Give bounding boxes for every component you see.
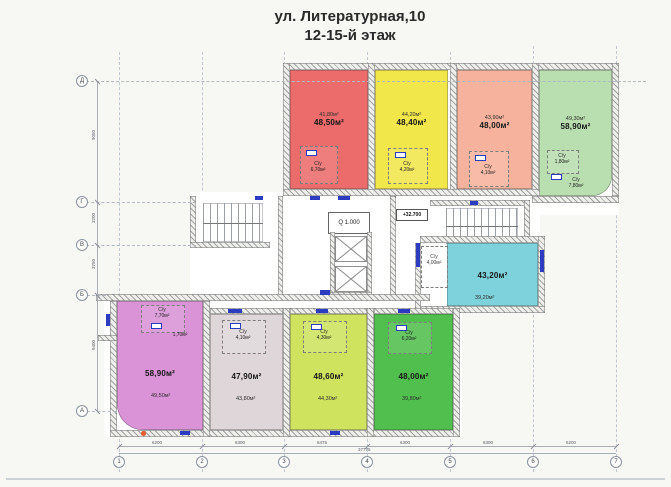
grid-bubble-col-2: 2 [196, 456, 208, 468]
window-mark [416, 243, 420, 267]
hall-area-label: 1,70м² [165, 333, 195, 339]
window-mark [398, 309, 410, 313]
grid-bubble-col-5: 5 [444, 456, 456, 468]
window-mark [310, 196, 320, 200]
window-mark [106, 314, 110, 326]
window-mark [228, 309, 242, 313]
room-area-label: 44,30м² [318, 396, 337, 402]
grid-bubble-col-3: 3 [278, 456, 290, 468]
bathroom-label: С/у1,80м² [548, 154, 576, 166]
window-mark [316, 309, 328, 313]
window-mark [255, 196, 263, 200]
bathroom-label: С/у4,10м² [226, 330, 260, 342]
sink-fixture-icon [311, 324, 322, 330]
dim-bottom-5: 6300 [483, 440, 493, 445]
sink-fixture-icon [551, 174, 562, 180]
apartment-bottom-purple: 58,90м² 49,50м² С/у7,70м² 1,70м² [117, 301, 203, 430]
window-mark [540, 250, 544, 272]
apartment-total-area: 58,90м² [539, 122, 612, 131]
elevator-cross-icon [335, 266, 367, 292]
apartment-total-area: 48,50м² [290, 118, 368, 127]
grid-bubble-row-b: Б [76, 289, 88, 301]
apartment-total-area: 48,60м² [290, 372, 367, 381]
room-area-label: 39,20м² [475, 295, 494, 301]
grid-bubble-row-v: В [76, 239, 88, 251]
wall [96, 294, 430, 301]
floor-plan-drawing: ул. Литературная,10 12-15-й этаж 41,80м²… [0, 0, 671, 487]
sink-fixture-icon [475, 155, 486, 161]
apartment-top-red: 41,80м² 48,50м² С/у6,70м² [290, 70, 368, 189]
dim-left-3: 3750 [91, 259, 96, 269]
dim-left-2: 3200 [91, 213, 96, 223]
dim-bottom-total: 37775 [358, 447, 371, 452]
dim-bottom-6: 6200 [566, 440, 576, 445]
title-address: ул. Литературная,10 [205, 8, 495, 27]
axis-row-g [76, 202, 196, 203]
room-area-label: 39,80м² [402, 396, 421, 402]
level-mark: +32.700 [396, 209, 428, 221]
wall [612, 63, 619, 196]
wall [368, 63, 375, 196]
bathroom-label: С/у7,70м² [145, 308, 179, 320]
wall [283, 189, 540, 196]
window-mark [330, 431, 340, 435]
apartment-total-area: 48,00м² [457, 121, 532, 130]
grid-bubble-row-a: А [76, 405, 88, 417]
window-mark [180, 431, 190, 435]
bathroom-label: С/у6,20м² [392, 331, 426, 343]
grid-bubble-col-6: 6 [527, 456, 539, 468]
apartment-mid-teal: 43,20м² 39,20м² [447, 243, 538, 306]
apartment-total-area: 48,40м² [375, 118, 448, 127]
bathroom-label: С/у4,10м² [471, 165, 505, 177]
drawing-frame-line [6, 478, 665, 480]
dim-left-1: 9050 [91, 130, 96, 140]
apartment-top-yellow: 44,20м² 48,40м² С/у4,20м² [375, 70, 448, 189]
apartment-top-green: 49,30м² 58,90м² С/у1,80м² С/у7,80м² [539, 70, 612, 196]
bathroom-label: С/у4,30м² [307, 330, 341, 342]
sink-fixture-icon [306, 150, 317, 156]
apartment-top-salmon: 43,90м² 48,00м² С/у4,10м² [457, 70, 532, 189]
wall [278, 196, 283, 300]
apartment-bottom-lime: 48,60м² 44,30м² С/у4,30м² [290, 314, 367, 430]
marker-dot [141, 431, 146, 436]
wall [367, 232, 372, 296]
wall [98, 335, 117, 341]
wall [532, 63, 539, 196]
apartment-bottom-mauve: 47,90м² 43,80м² С/у4,10м² [210, 314, 283, 430]
grid-bubble-row-d: Д [76, 75, 88, 87]
wall [430, 200, 530, 206]
dimension-total-line [119, 453, 616, 454]
apartment-bottom-green: 48,00м² 39,80м² С/у6,20м² [374, 314, 453, 430]
sink-fixture-icon [396, 325, 407, 331]
window-mark [320, 290, 330, 295]
wall [538, 236, 545, 313]
grid-bubble-col-4: 4 [361, 456, 373, 468]
grid-bubble-col-7: 7 [610, 456, 622, 468]
wall [532, 196, 619, 203]
wall [190, 196, 196, 248]
sink-fixture-icon [395, 152, 406, 158]
room-area-label: 43,80м² [236, 396, 255, 402]
dim-bottom-3: 6475 [317, 440, 327, 445]
dim-bottom-1: 6200 [152, 440, 162, 445]
wall [453, 308, 460, 437]
dim-bottom-2: 6300 [235, 440, 245, 445]
apartment-total-area: 58,90м² [117, 369, 203, 378]
elevator-cross-icon [335, 236, 367, 262]
window-mark [338, 196, 350, 200]
wall [420, 236, 545, 243]
sink-fixture-icon [151, 323, 162, 329]
bathroom-outline [421, 246, 448, 288]
grid-bubble-col-1: 1 [113, 456, 125, 468]
wall [283, 63, 290, 190]
wall [190, 242, 270, 248]
wall [210, 308, 283, 314]
title-floors: 12-15-й этаж [205, 27, 495, 46]
wall [450, 63, 457, 196]
wall [283, 308, 290, 437]
staircase-left [203, 203, 263, 242]
axis-row-d [76, 81, 646, 82]
apartment-total-area: 43,20м² [447, 271, 538, 280]
wall [203, 301, 210, 437]
bathroom-label: С/у6,70м² [302, 162, 334, 174]
dim-left-4: 9400 [91, 340, 96, 350]
bathroom2-label: С/у7,80м² [561, 178, 591, 190]
wall [367, 308, 374, 437]
dim-bottom-4: 6300 [400, 440, 410, 445]
apartment-total-area: 48,00м² [374, 372, 453, 381]
room-area-label: 49,50м² [151, 393, 170, 399]
grid-bubble-row-g: Г [76, 196, 88, 208]
wall [290, 308, 367, 314]
apartment-total-area: 47,90м² [210, 372, 283, 381]
elevator-shaft [335, 266, 367, 292]
axis-row-v [76, 245, 196, 246]
sink-fixture-icon [230, 323, 241, 329]
core-scale-note: Q 1.000 [328, 212, 370, 234]
bathroom-label: С/у4,20м² [390, 162, 424, 174]
window-mark [470, 201, 478, 205]
elevator-shaft [335, 236, 367, 262]
drawing-title: ул. Литературная,10 12-15-й этаж [205, 8, 495, 46]
wall [374, 308, 453, 314]
